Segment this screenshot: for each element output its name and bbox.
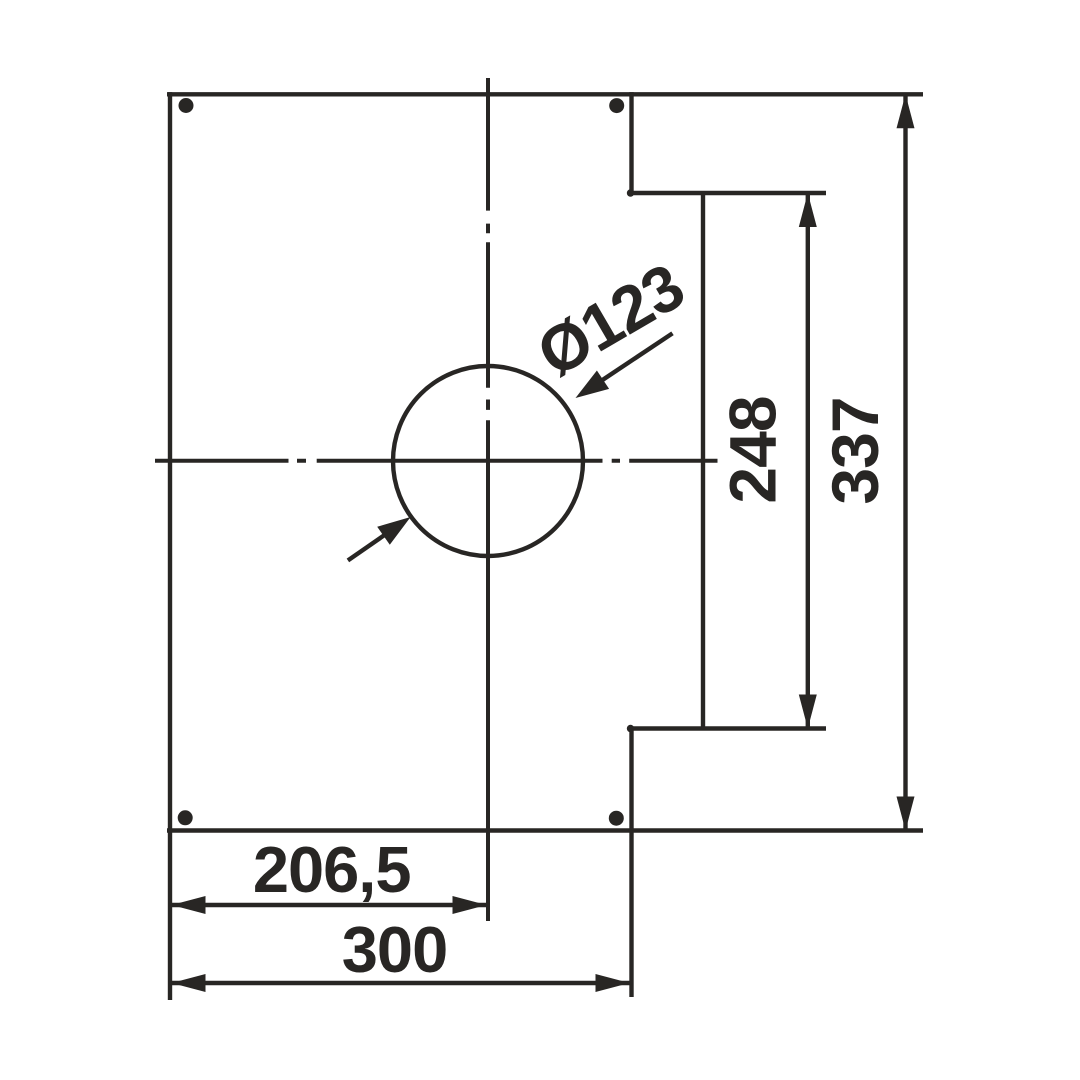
svg-text:300: 300 xyxy=(342,913,447,986)
svg-text:337: 337 xyxy=(818,397,892,504)
svg-text:248: 248 xyxy=(716,396,790,503)
svg-text:206,5: 206,5 xyxy=(253,833,411,906)
